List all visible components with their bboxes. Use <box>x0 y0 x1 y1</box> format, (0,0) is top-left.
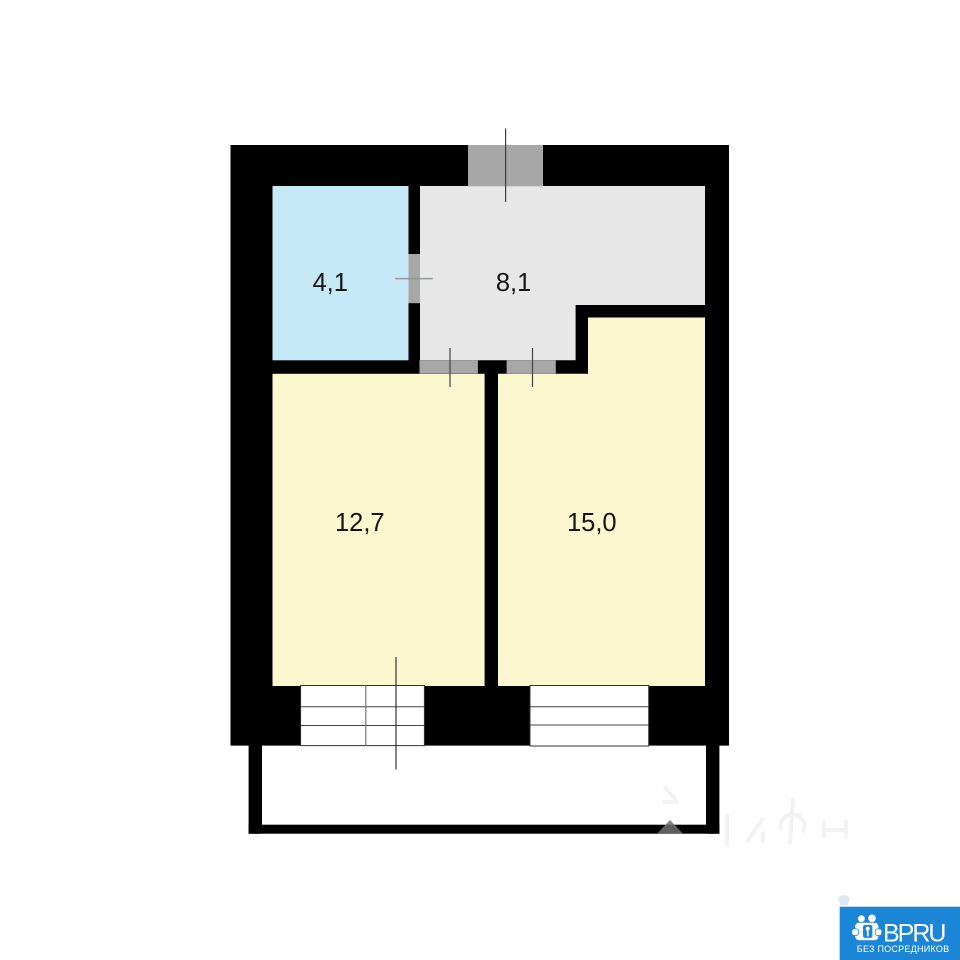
svg-text:4,1: 4,1 <box>312 269 347 297</box>
svg-text:БЕЗ ПОСРЕДНИКОВ: БЕЗ ПОСРЕДНИКОВ <box>857 944 950 954</box>
svg-text:12,7: 12,7 <box>335 509 385 537</box>
svg-text:8,1: 8,1 <box>496 269 531 297</box>
svg-text:15,0: 15,0 <box>567 509 617 537</box>
